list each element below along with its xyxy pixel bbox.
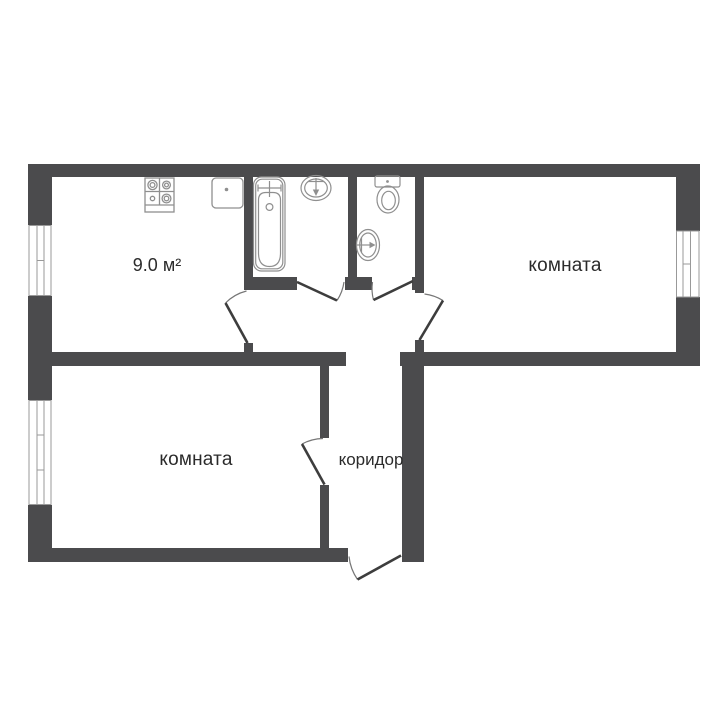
bathtub-icon — [254, 177, 286, 271]
wall-bath-bottom-1 — [253, 277, 297, 290]
wall-corridor-right — [402, 352, 424, 562]
door-bathroom — [297, 282, 344, 301]
walls — [28, 164, 700, 562]
stove-icon — [145, 178, 174, 212]
door-room-right — [420, 294, 444, 340]
wall-bath-bottom-3 — [412, 277, 424, 290]
washbasin-icon — [301, 176, 331, 201]
wall-bath-bottom-2 — [345, 277, 372, 290]
wall-kitchen-right — [244, 177, 253, 290]
wall-room-right-left-stub — [415, 340, 424, 354]
wall-room-bottom-right-upper — [320, 352, 329, 438]
wall-room-bottom-right-lower — [320, 485, 329, 548]
wall-left-upper — [28, 164, 52, 225]
floor-plan-drawing: 9.0 м² комната комната коридор — [0, 0, 725, 725]
window-room-bottom-icon — [29, 401, 51, 505]
toilet-icon — [375, 176, 400, 213]
kitchen-area-label: 9.0 м² — [133, 255, 181, 275]
wall-right-upper — [676, 164, 700, 231]
door-room-bottom — [302, 439, 325, 485]
wall-middle-left — [40, 352, 346, 366]
kitchen-sink-icon — [212, 178, 243, 208]
round-sink-icon — [357, 230, 380, 261]
floor-plan-page: 9.0 м² комната комната коридор — [0, 0, 725, 725]
wall-middle-right — [400, 352, 700, 366]
door-toilet — [372, 281, 413, 300]
room-right-label: комната — [528, 255, 601, 276]
wall-top — [28, 164, 700, 177]
window-kitchen-icon — [29, 226, 51, 296]
door-kitchen — [226, 291, 248, 343]
room-bottom-label: комната — [159, 449, 232, 470]
wall-bath-toilet-divider — [348, 177, 357, 277]
wall-left-middle — [28, 296, 52, 400]
wall-room-right-left — [415, 177, 424, 293]
door-entrance — [349, 556, 401, 580]
corridor-label: коридор — [339, 450, 404, 469]
window-room-right-icon — [677, 231, 700, 297]
wall-kitchen-right-stub — [244, 343, 253, 355]
wall-bottom — [28, 548, 348, 562]
